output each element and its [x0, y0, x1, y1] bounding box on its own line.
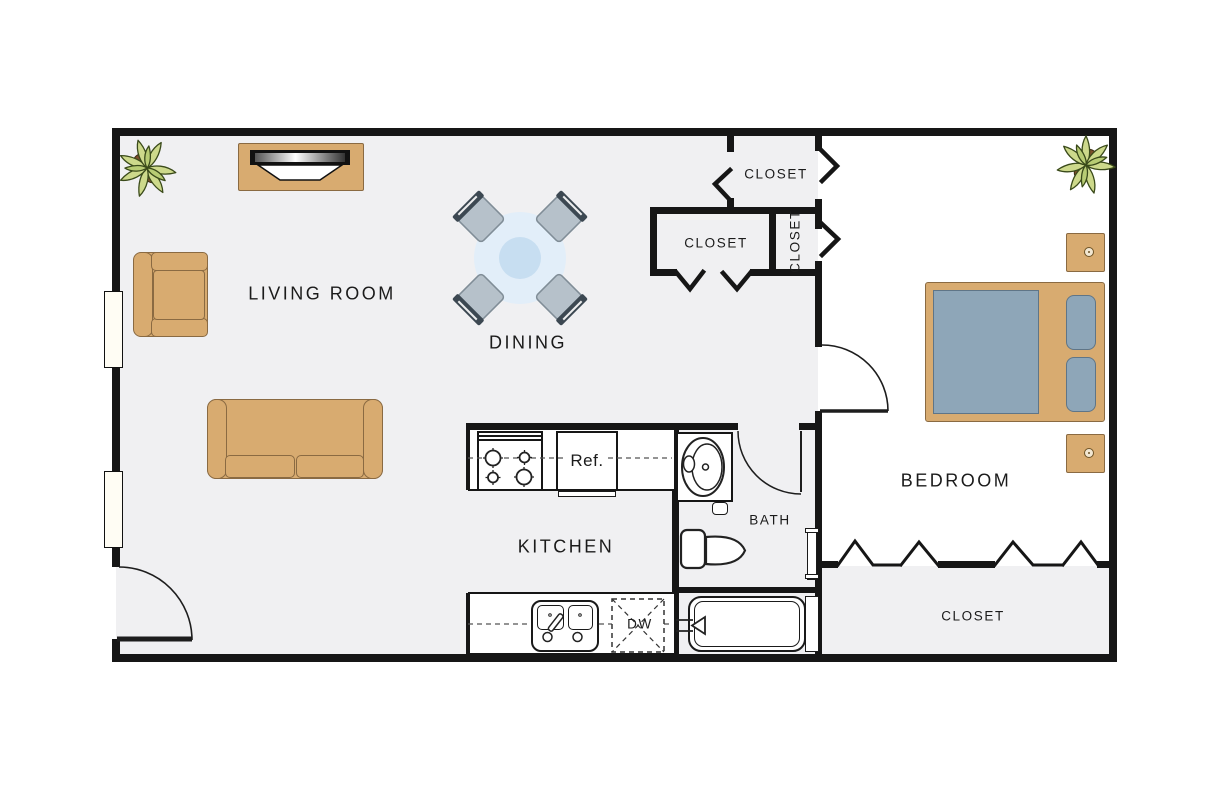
bath-mirror-cap-top — [805, 528, 819, 533]
sink-basin-left — [537, 605, 564, 630]
wall-accordion-stub-left — [822, 561, 838, 568]
bed-blanket — [933, 290, 1039, 414]
armchair-back — [133, 252, 153, 337]
closet-side-door-chevron — [821, 223, 838, 255]
bedroom-label: BEDROOM — [901, 471, 1012, 492]
bathtub-inner — [694, 601, 800, 647]
wall-closet-hall-bottom-left — [650, 269, 677, 276]
wall-bedroom-b — [815, 199, 822, 229]
closet-bedroom-label: CLOSET — [941, 609, 1005, 624]
stove-back-line-2 — [479, 439, 541, 441]
sofa-arm-right — [363, 399, 383, 479]
refrigerator-door — [558, 491, 616, 497]
bath-mirror-cap-bottom — [805, 574, 819, 579]
closet-top-label: CLOSET — [744, 167, 808, 182]
bedroom-door — [820, 345, 888, 411]
wall-bedroom-a — [815, 135, 822, 151]
closet-top-bifold-right — [820, 149, 837, 181]
nightstand-bottom-knob — [1084, 448, 1094, 458]
wall-bedroom-c — [815, 261, 822, 347]
sofa-arm-left — [207, 399, 227, 479]
wall-right — [1109, 128, 1117, 662]
window-upper — [104, 291, 123, 368]
wall-closet-hall-bottom-right — [750, 269, 822, 276]
closet-hall-label: CLOSET — [684, 236, 748, 251]
wall-closet-hall-left — [650, 207, 657, 276]
wall-bottom — [112, 654, 1117, 662]
wall-left-lower — [112, 639, 120, 662]
wall-closet-top-stub-a — [727, 135, 734, 152]
wall-accordion-stub-right — [1097, 561, 1112, 568]
bed-pillow-top — [1066, 295, 1096, 350]
bed-pillow-bottom — [1066, 357, 1096, 412]
bath-vanity — [676, 432, 733, 502]
bath-label: BATH — [749, 513, 790, 528]
armchair-arm-top — [151, 252, 208, 271]
bath-mirror — [807, 530, 817, 580]
window-lower — [104, 471, 123, 548]
refrigerator-label: Ref. — [570, 451, 603, 471]
closet-side-label: CLOSET — [788, 209, 803, 273]
living-room-label: LIVING ROOM — [248, 284, 396, 305]
armchair-seat — [153, 270, 205, 320]
wall-closet-divider — [769, 207, 776, 276]
sofa-cushion-right — [296, 455, 364, 478]
bath-shelf — [805, 596, 819, 652]
stove-back-line-1 — [479, 435, 541, 437]
bath-vanity-pedestal — [712, 502, 728, 515]
wall-bath-top-stub — [799, 423, 822, 430]
wall-closet-top-stub-b — [727, 198, 734, 209]
sofa-cushion-left — [225, 455, 295, 478]
kitchen-label: KITCHEN — [518, 537, 615, 558]
tv-stand — [238, 143, 364, 191]
floor-plan: LIVING ROOM DINING KITCHEN BATH BEDROOM … — [0, 0, 1224, 792]
wall-top — [112, 128, 1117, 136]
dishwasher-label: DW — [627, 617, 653, 632]
sink-basin-right — [568, 605, 593, 630]
wall-tub — [672, 587, 822, 593]
wall-accordion-stub-mid — [938, 561, 995, 568]
dining-label: DINING — [489, 333, 567, 354]
nightstand-top-knob — [1084, 247, 1094, 257]
armchair-arm-bottom — [151, 318, 208, 337]
